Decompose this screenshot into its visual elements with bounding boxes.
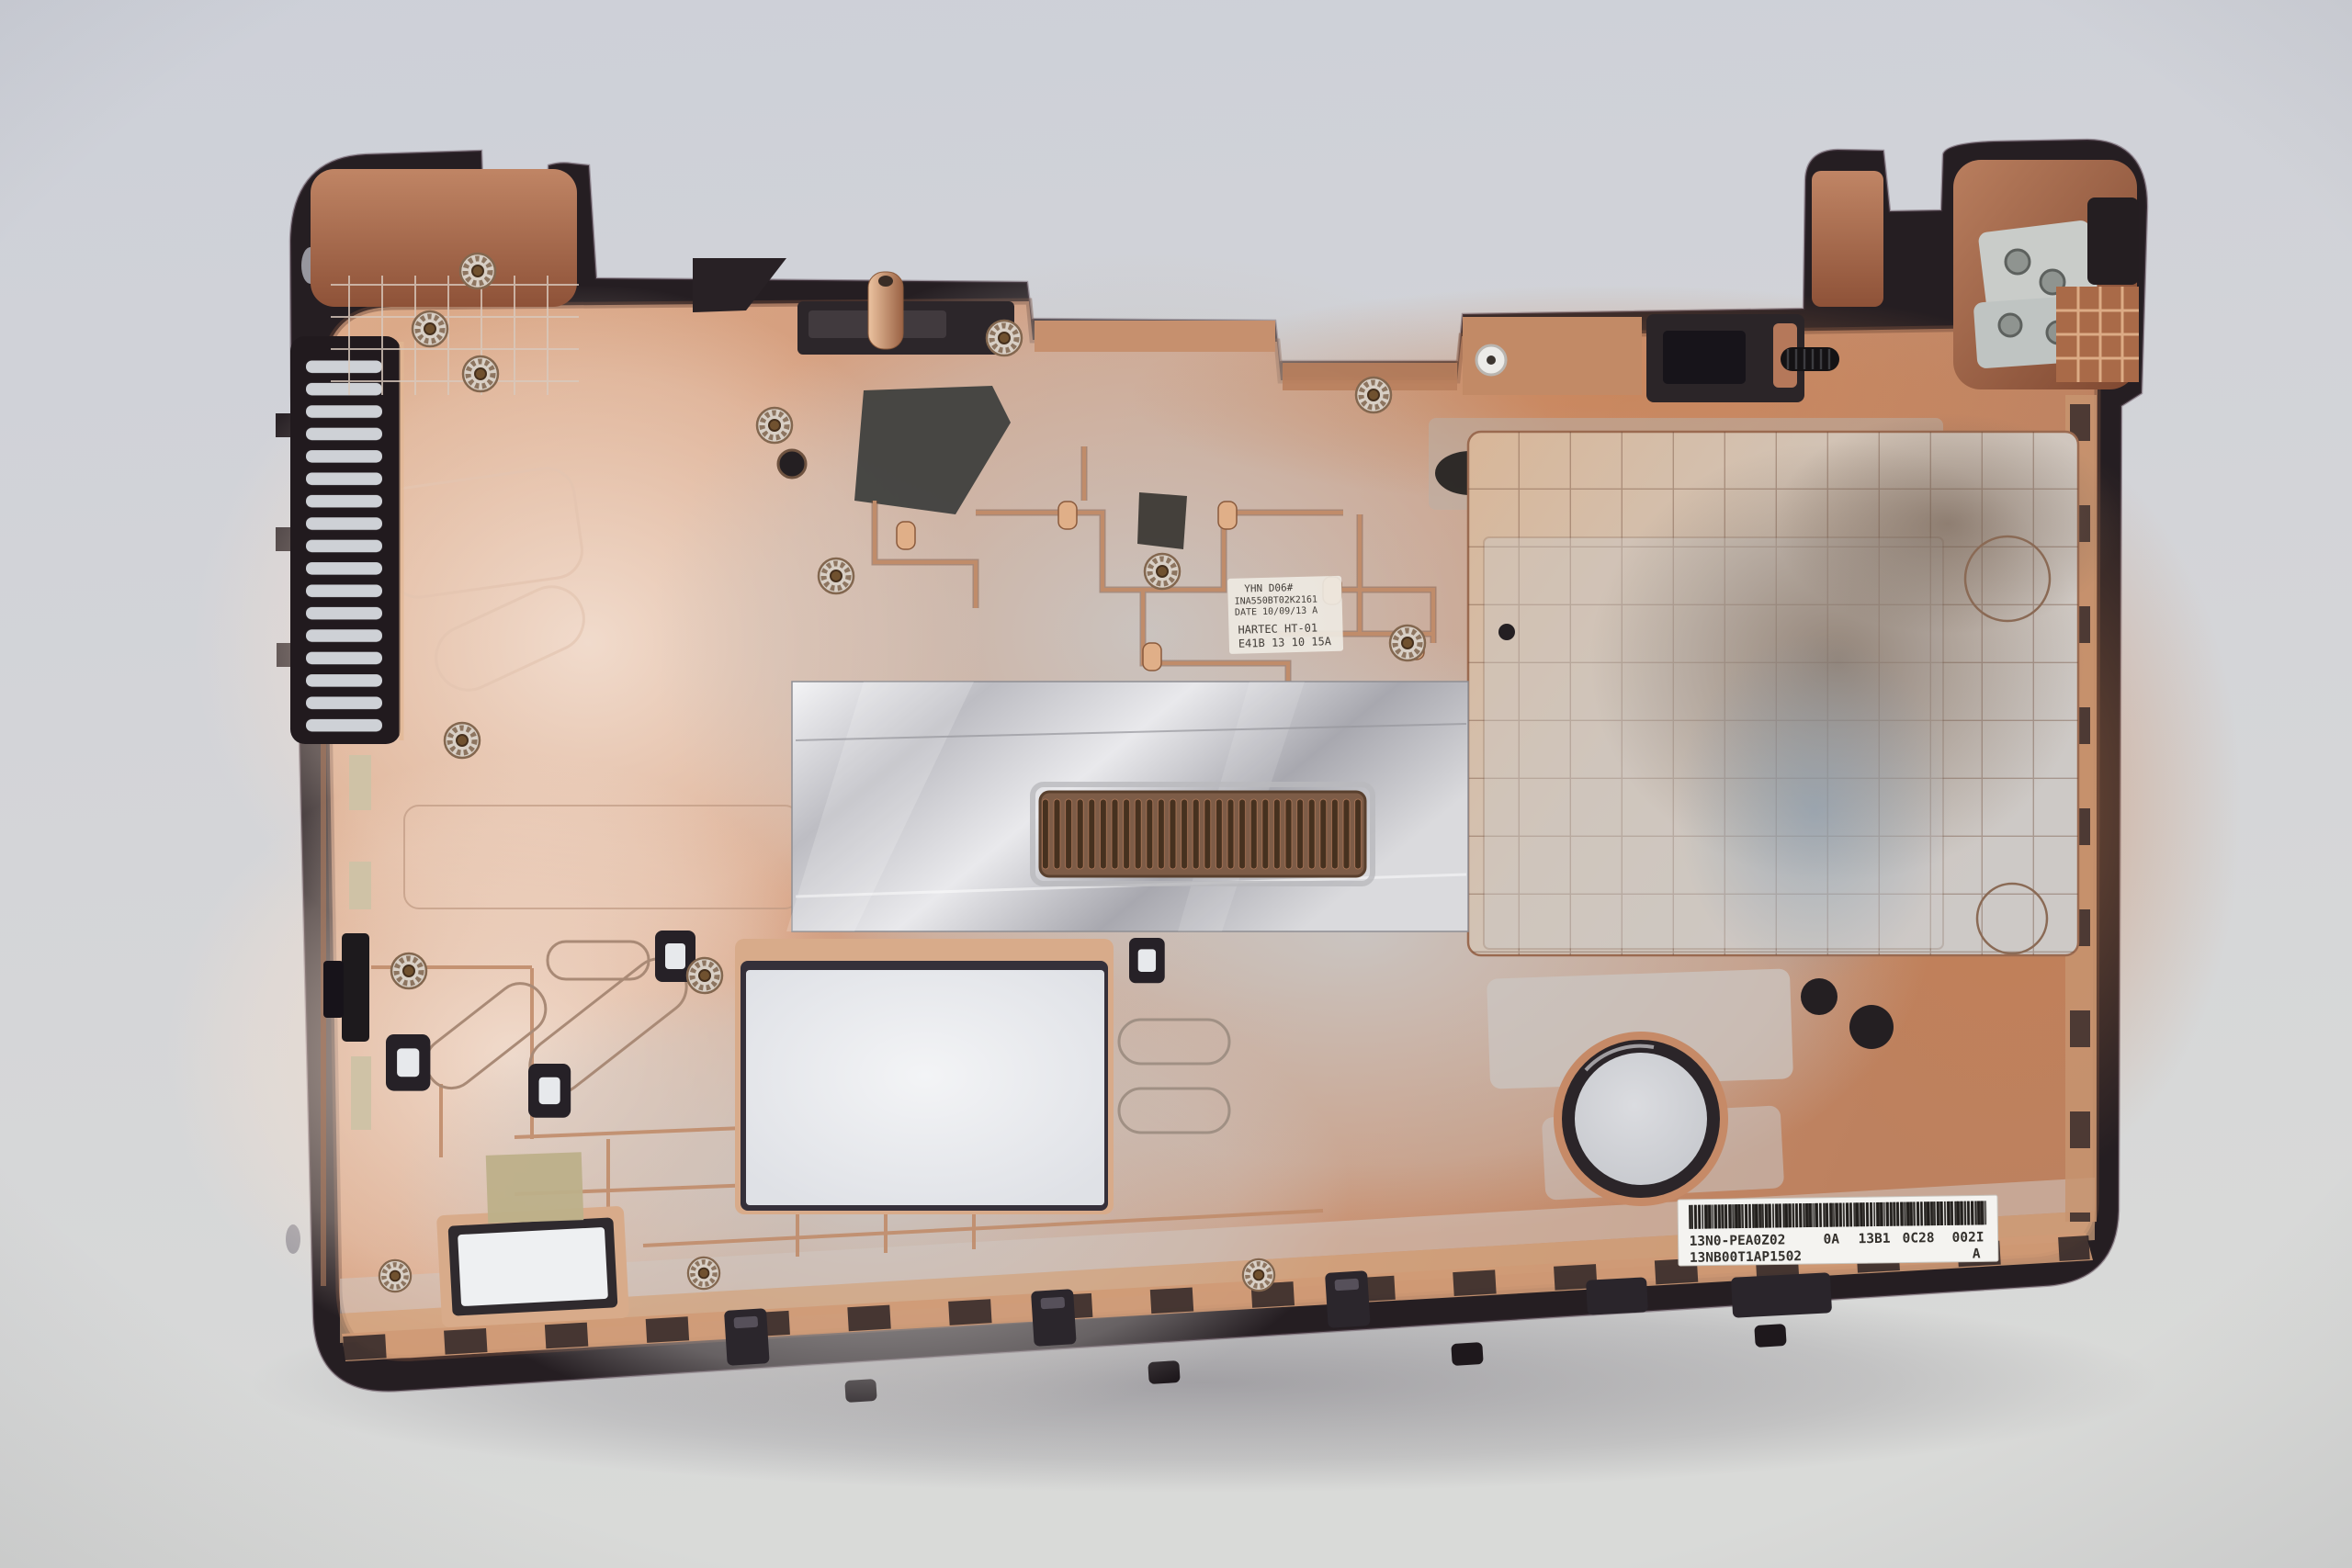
case-photo-canvas: YHN D06# INA550BT02K2161 DATE 10/09/13 A… (0, 0, 2352, 1568)
vignette (0, 0, 2352, 1568)
photo-laptop-bottom-case: YHN D06# INA550BT02K2161 DATE 10/09/13 A… (0, 0, 2352, 1568)
